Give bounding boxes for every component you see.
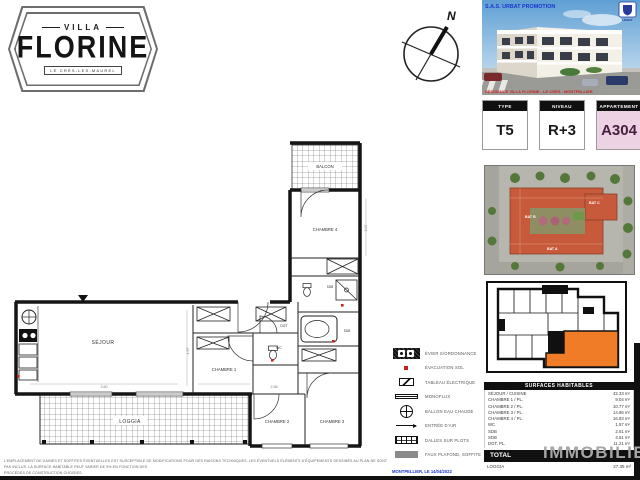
monoflux-icon xyxy=(395,394,418,399)
unit-info-row: TYPE T5 NIVEAU R+3 APPARTEMENT A304 xyxy=(482,100,640,150)
disclaimer: L'EMPLACEMENT DE GAINES ET SOFFITES ÉVEN… xyxy=(4,459,390,476)
floor-drains xyxy=(17,304,344,378)
immobilier-watermark: IMMOBILIER xyxy=(543,443,640,463)
room-label-sdb1: SDB xyxy=(327,285,334,289)
room-label-chambre3: CHAMBRE 3 xyxy=(320,419,345,424)
plan-date: MONTPELLIER, LE 14/04/2022 xyxy=(392,469,452,474)
appartement-box: APPARTEMENT A304 xyxy=(596,100,640,150)
appartement-label: APPARTEMENT xyxy=(597,101,640,111)
niveau-box: NIVEAU R+3 xyxy=(539,100,585,150)
sink-icon xyxy=(393,348,420,359)
site-plan: BAT B BAT A BAT C xyxy=(484,165,635,275)
type-box: TYPE T5 xyxy=(482,100,528,150)
disclaimer-line1: L'EMPLACEMENT DE GAINES ET SOFFITES ÉVEN… xyxy=(4,459,390,471)
logo-subtitle: LE CRÈS-LES-MAUREL xyxy=(44,66,122,75)
electrical-panel-icon xyxy=(399,378,414,386)
appartement-value: A304 xyxy=(597,111,640,149)
room-label-chambre2: CHAMBRE 2 xyxy=(265,419,290,424)
bat-c-label: BAT C xyxy=(589,201,600,205)
surfaces-table: SURFACES HABITABLES SÉJOUR / CUISINE42.3… xyxy=(484,382,634,448)
car xyxy=(582,79,598,86)
legend-item: DALLES SUR PLOTS xyxy=(391,433,487,448)
logo-name: FLORINE xyxy=(17,32,150,64)
legend-item: ÉVIER S/ORDONNANCE xyxy=(391,346,487,361)
legend-item: FAUX PLAFOND, SOFFITE xyxy=(391,448,487,463)
niveau-label: NIVEAU xyxy=(540,101,584,111)
legend-item: MONOFLUX xyxy=(391,390,487,405)
room-label-sdb2: SDB xyxy=(344,329,351,333)
air-inlet-icon xyxy=(396,425,416,426)
room-label-balcon: BALCON xyxy=(316,164,333,169)
kitchen-fixtures xyxy=(19,310,37,380)
niveau-value: R+3 xyxy=(540,111,584,149)
page-bottom-rule xyxy=(0,476,640,480)
dimension-labels: 3.60 2.58 4.97 3.07 xyxy=(101,225,369,390)
urbat-brand-text: URBAT xyxy=(622,18,632,22)
room-label-dgt: DGT xyxy=(280,324,287,328)
building-render: URBAT S.A.S. URBAT PROMOTION RÉSIDENCE V… xyxy=(482,0,640,95)
room-labels: SÉJOUR CHAMBRE 1 CHAMBRE 2 CHAMBRE 3 CHA… xyxy=(92,164,351,425)
room-label-wc: WC xyxy=(276,346,282,350)
key-plan xyxy=(486,281,627,373)
render-caption: RÉSIDENCE VILLA FLORINE - LE CRÈS - MONT… xyxy=(485,89,593,94)
type-value: T5 xyxy=(483,111,527,149)
doors xyxy=(228,190,332,419)
room-label-loggia: LOGGIA xyxy=(119,419,141,425)
legend-item: BALLON EAU CHAUDE xyxy=(391,404,487,419)
type-label: TYPE xyxy=(483,101,527,111)
soffit-icon xyxy=(395,451,418,458)
car xyxy=(606,76,628,85)
legend-item: ENTRÉE D'AIR xyxy=(391,419,487,434)
north-label: N xyxy=(447,9,456,23)
svg-text:3.07: 3.07 xyxy=(364,225,368,232)
floorplan-sheet: VILLA FLORINE LE CRÈS-LES-MAUREL N xyxy=(0,0,640,480)
loggia-row: LOGGIA27.35 m² xyxy=(484,464,634,469)
room-label-sejour: SÉJOUR xyxy=(92,339,115,346)
developer-name: S.A.S. URBAT PROMOTION xyxy=(485,4,555,10)
svg-text:4.97: 4.97 xyxy=(186,348,190,355)
drain-icon xyxy=(404,366,408,370)
compass-rose: N xyxy=(395,4,469,96)
room-label-chambre1: CHAMBRE 1 xyxy=(212,367,237,372)
plan-legend: ÉVIER S/ORDONNANCE ÉVACUATION SOL TABLEA… xyxy=(391,346,487,462)
surfaces-title: SURFACES HABITABLES xyxy=(484,382,634,390)
brand-logo: VILLA FLORINE LE CRÈS-LES-MAUREL xyxy=(8,6,158,92)
room-label-chambre4: CHAMBRE 4 xyxy=(313,227,338,232)
slab-grid-icon xyxy=(395,436,418,444)
legend-item: TABLEAU ÉLECTRIQUE xyxy=(391,375,487,390)
bat-a-label: BAT A xyxy=(547,247,558,251)
car xyxy=(484,73,502,81)
water-heater-icon xyxy=(400,405,413,418)
svg-text:2.58: 2.58 xyxy=(271,385,278,389)
svg-text:3.60: 3.60 xyxy=(101,385,108,389)
legend-item: ÉVACUATION SOL xyxy=(391,361,487,376)
bat-b-label: BAT B xyxy=(525,215,536,219)
